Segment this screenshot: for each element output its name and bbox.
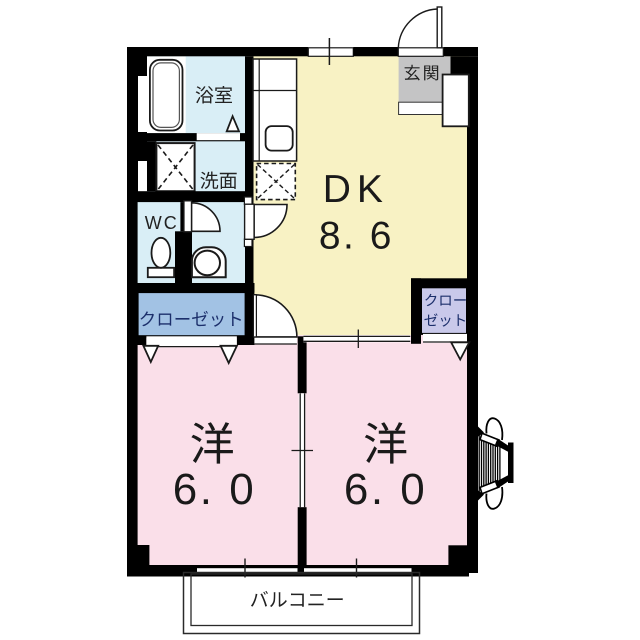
svg-text:8. 6: 8. 6 [319,215,394,258]
svg-text:6. 0: 6. 0 [173,465,256,514]
svg-text:6. 0: 6. 0 [344,465,427,514]
svg-text:WC: WC [145,213,179,233]
svg-text:DK: DK [323,168,389,211]
